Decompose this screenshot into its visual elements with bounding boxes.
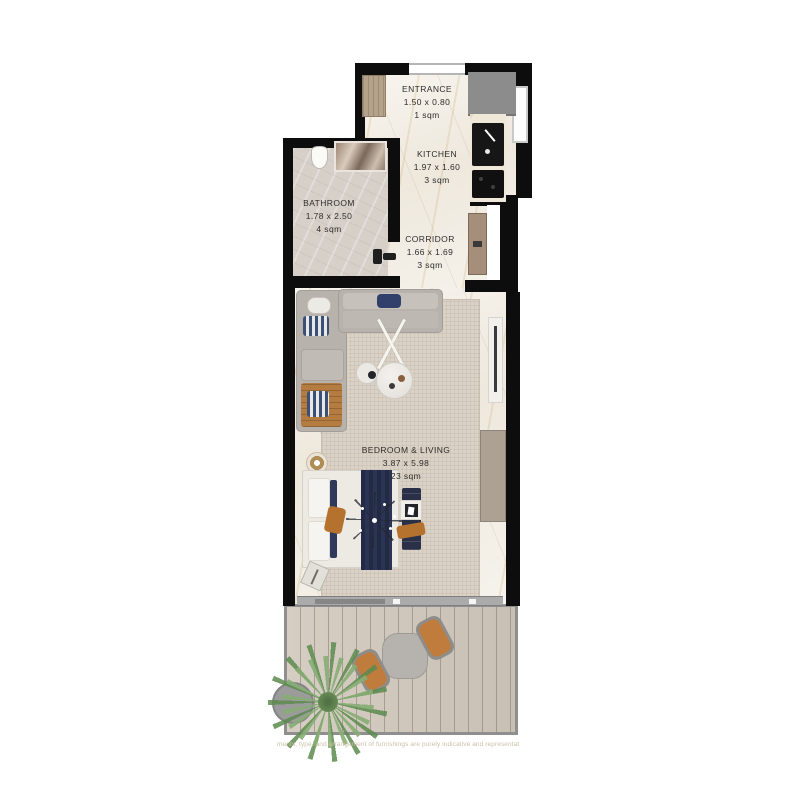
- kitchen-label: KITCHEN 1.97 x 1.60 3 sqm: [382, 148, 492, 187]
- disclaimer-text: ments, type, and arrangement of furnishi…: [277, 741, 532, 750]
- coffee-table-item-1: [398, 375, 405, 382]
- bedroom-living-area: 23 sqm: [351, 470, 461, 483]
- entrance-name: ENTRANCE: [372, 83, 482, 96]
- bathroom-area: 4 sqm: [274, 223, 384, 236]
- wall-bathroom-bottom: [283, 276, 400, 288]
- bathroom-vanity: [334, 141, 387, 172]
- floor-lamp-stem: [310, 569, 318, 584]
- coffee-table: [376, 362, 413, 399]
- wall-corridor-bottom: [465, 280, 518, 292]
- bedroom-living-label: BEDROOM & LIVING 3.87 x 5.98 23 sqm: [351, 444, 461, 483]
- bathroom-dimensions: 1.78 x 2.50: [274, 210, 384, 223]
- wall-main-right: [506, 292, 520, 606]
- plant-center: [318, 692, 338, 712]
- corridor-area: 3 sqm: [375, 259, 485, 272]
- bedroom-living-dimensions: 3.87 x 5.98: [351, 457, 461, 470]
- sliding-door: [297, 596, 503, 606]
- sofa-stripe-pillow-1: [303, 316, 329, 336]
- sink-faucet-icon: [484, 129, 495, 142]
- sofa-stripe-pillow-2: [307, 391, 329, 417]
- side-table-small: [356, 362, 378, 384]
- chandelier-icon: [346, 492, 402, 548]
- tv-console: [488, 317, 503, 403]
- bedroom-living-name: BEDROOM & LIVING: [351, 444, 461, 457]
- small-table-bowl: [368, 371, 376, 379]
- corridor-name: CORRIDOR: [375, 233, 485, 246]
- wall-main-left: [283, 288, 295, 606]
- toilet: [311, 146, 328, 169]
- entrance-dimensions: 1.50 x 0.80: [372, 96, 482, 109]
- bathroom-label: BATHROOM 1.78 x 2.50 4 sqm: [274, 197, 384, 236]
- tv-screen: [494, 326, 497, 392]
- sofa-ottoman: [301, 349, 344, 381]
- chandelier-bulbs: [372, 518, 377, 523]
- bench-tray: [400, 500, 422, 520]
- kitchen-area: 3 sqm: [382, 174, 492, 187]
- entrance-threshold: [409, 63, 465, 75]
- bed-orange-pillow: [323, 505, 346, 534]
- floor-plan: ENTRANCE 1.50 x 0.80 1 sqm KITCHEN 1.97 …: [0, 0, 800, 800]
- sofa-round-pillow: [307, 297, 331, 314]
- tray-paper: [407, 507, 414, 516]
- sliding-door-leaf: [315, 599, 385, 604]
- bathroom-name: BATHROOM: [274, 197, 384, 210]
- wardrobe: [480, 430, 506, 522]
- kitchen-name: KITCHEN: [382, 148, 492, 161]
- corridor-label: CORRIDOR 1.66 x 1.69 3 sqm: [375, 233, 485, 272]
- corridor-dimensions: 1.66 x 1.69: [375, 246, 485, 259]
- wall-right-corridor: [500, 195, 518, 292]
- sliding-door-gap-1: [393, 599, 400, 604]
- sliding-door-gap-2: [469, 599, 476, 604]
- coffee-table-item-2: [389, 383, 395, 389]
- kitchen-dimensions: 1.97 x 1.60: [382, 161, 492, 174]
- corridor-door-opening: [487, 205, 500, 280]
- sofa-navy-pillow: [377, 294, 401, 308]
- entrance-area: 1 sqm: [372, 109, 482, 122]
- entrance-label: ENTRANCE 1.50 x 0.80 1 sqm: [372, 83, 482, 122]
